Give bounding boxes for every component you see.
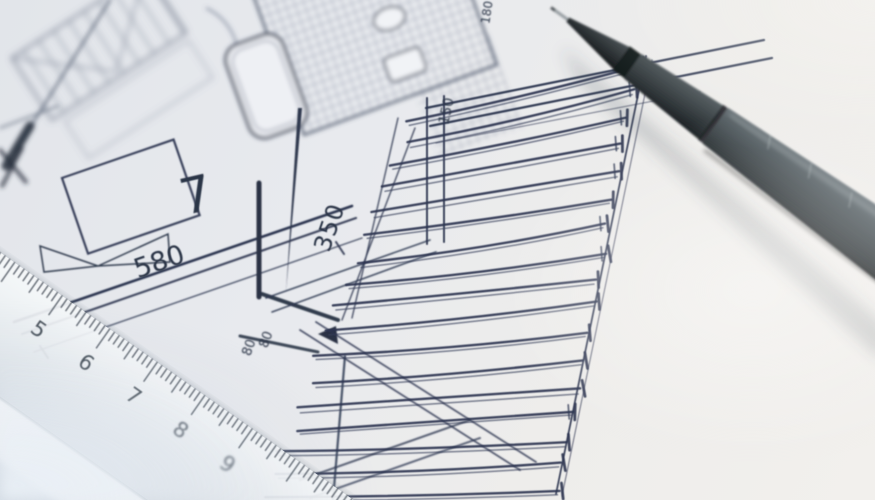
dimension-80b-label: 80 [257, 329, 277, 350]
bed-group [62, 140, 200, 254]
dimension-350-label: 350 [308, 200, 350, 255]
ruler-graphics [0, 221, 387, 500]
stair-arrow [12, 14, 116, 115]
plank-end-tick [568, 434, 569, 450]
wall-line [266, 240, 430, 298]
plank-line-2 [374, 177, 617, 218]
stair-tread [39, 41, 79, 103]
tile-line [280, 0, 477, 68]
plank-end-tick [629, 82, 630, 96]
toilet [383, 46, 427, 82]
stair-tread [54, 31, 94, 93]
sink [371, 3, 409, 35]
stair-tread [69, 21, 109, 83]
plank-end-tick [600, 217, 601, 231]
staircase-group [12, 0, 215, 164]
dimension-180-label: 180 [478, 0, 495, 25]
corner-wall [262, 294, 338, 320]
ruler: 5 6 7 8 9 [0, 221, 387, 500]
plank-end-tick [561, 483, 563, 499]
plank-end-tick [589, 325, 590, 341]
plank-end-tick [598, 272, 599, 288]
plank-end-tick [601, 247, 602, 261]
plank-line [346, 254, 606, 285]
plank-end-tick [568, 405, 569, 419]
scene-canvas: 7 580 350 80 80 150 180 5 6 7 8 9 [0, 0, 875, 500]
plank-line [313, 333, 587, 356]
staircase [12, 0, 215, 164]
plank-end-tick [608, 246, 611, 262]
plank-line [371, 171, 619, 212]
stair-landing [65, 41, 213, 159]
plank-line-2 [316, 365, 581, 388]
plank-end-tick [585, 352, 588, 368]
plank-end-tick [563, 455, 566, 471]
plank-line [297, 388, 580, 407]
plank-line [326, 302, 597, 331]
bed-outline [62, 140, 200, 254]
tile-line [294, 0, 371, 188]
room-number-label: 7 [174, 164, 218, 228]
plank-line [276, 442, 566, 451]
plank-end-tick [615, 137, 616, 151]
tile-line [270, 0, 467, 43]
bathroom [221, 0, 526, 203]
plank-line [390, 118, 626, 166]
plank-end-tick [598, 294, 599, 310]
plank-line-2 [329, 306, 595, 335]
plank-end-tick [621, 163, 622, 179]
plank-end-tick [614, 164, 615, 178]
plank-end-tick [607, 216, 609, 232]
plank-line-2 [385, 148, 618, 191]
stair-tread [144, 0, 184, 34]
tile-line [307, 72, 504, 144]
plank-line-2 [367, 203, 609, 238]
tile-line [261, 0, 458, 17]
leader-pin [286, 108, 302, 292]
plank-line [358, 224, 605, 264]
mechanical-pencil [496, 0, 875, 360]
dimension-line-350 [342, 128, 415, 320]
photo-blueprint-scene: 7 580 350 80 80 150 180 5 6 7 8 9 [0, 0, 875, 500]
